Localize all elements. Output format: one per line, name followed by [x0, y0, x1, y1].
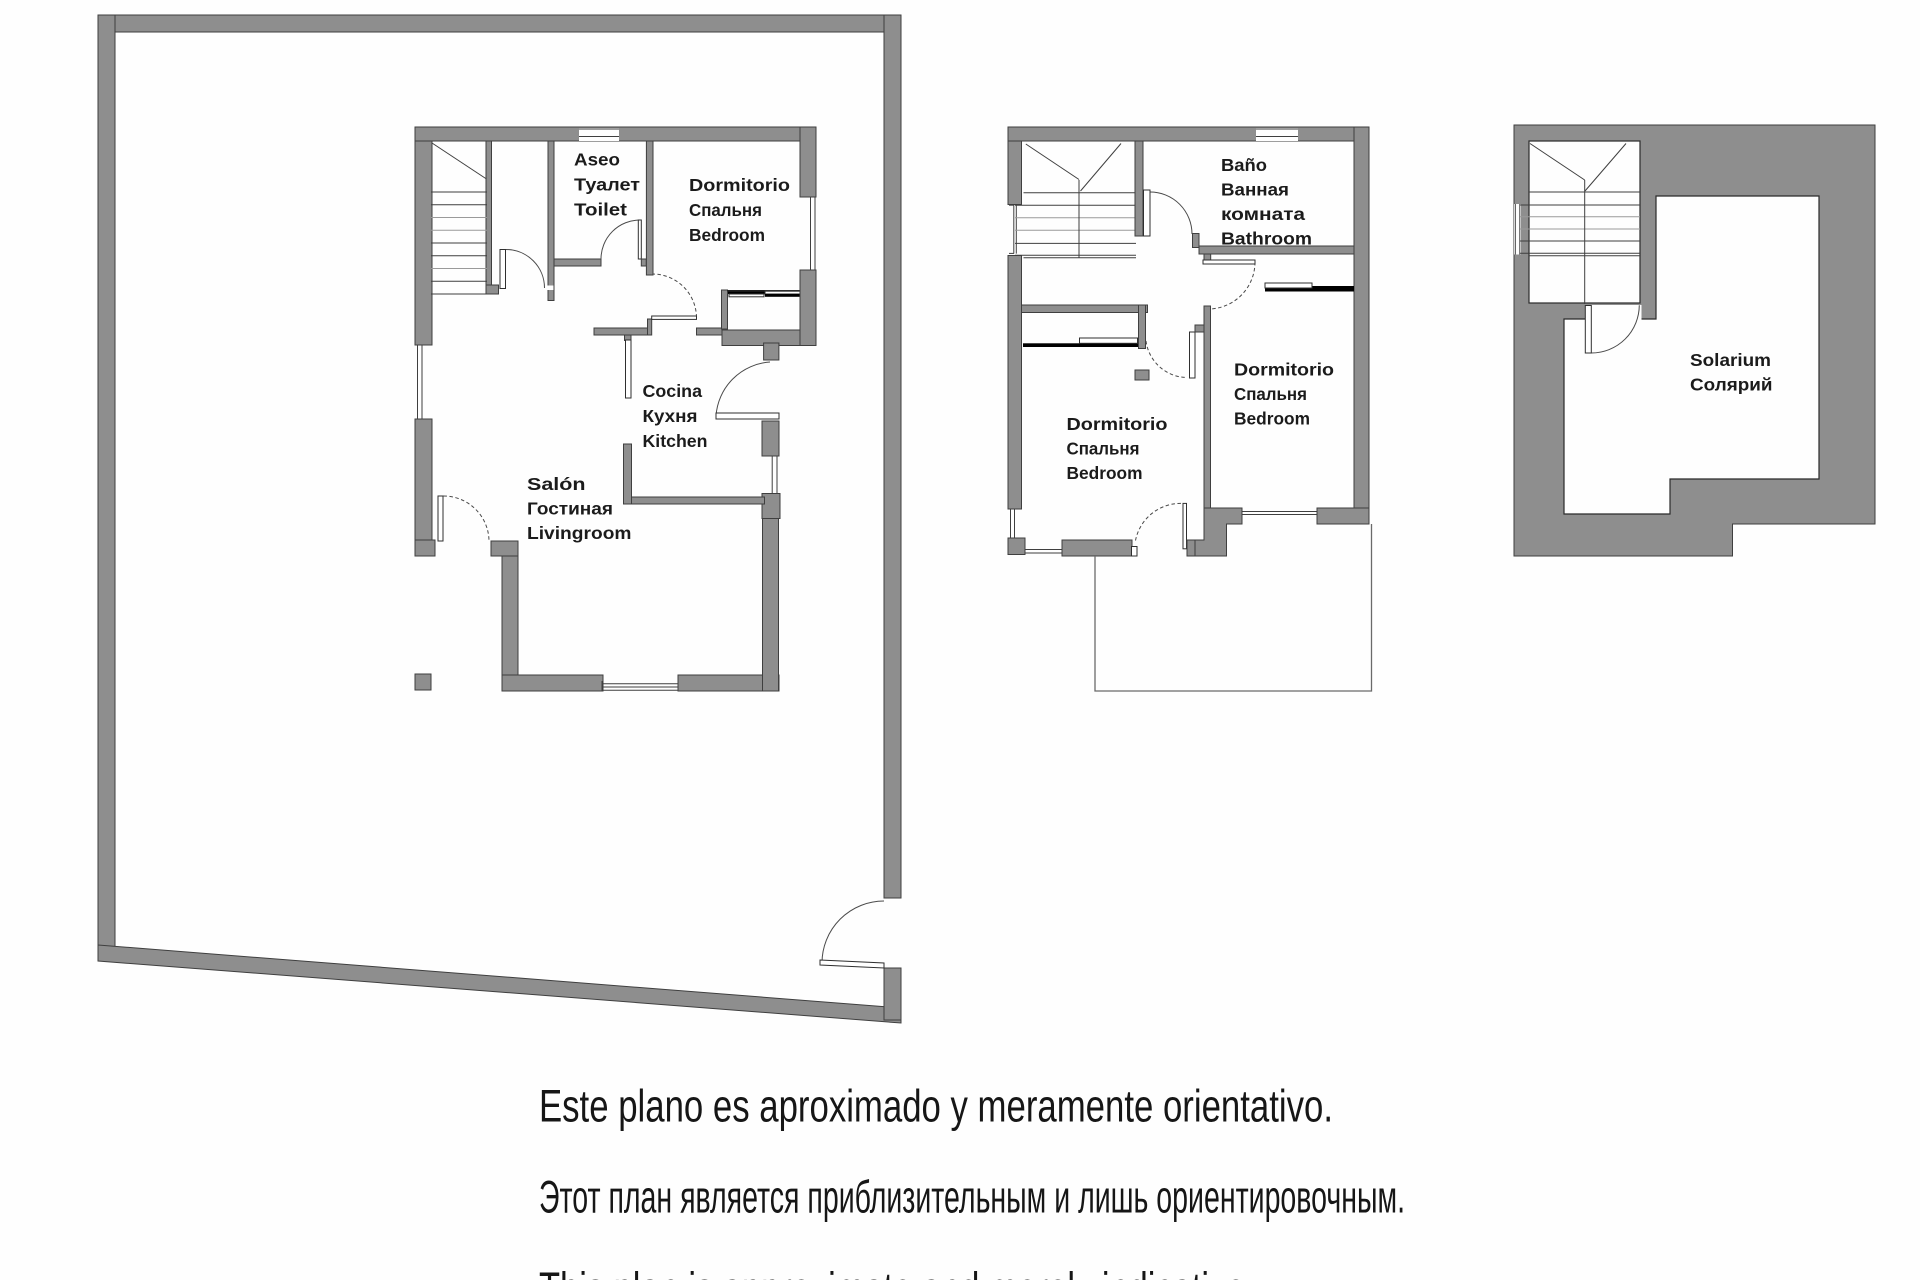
svg-text:Гостиная: Гостиная [527, 499, 613, 519]
svg-text:Dormitorio: Dormitorio [1067, 414, 1168, 434]
svg-text:Toilet: Toilet [574, 200, 627, 220]
svg-text:комната: комната [1221, 204, 1305, 224]
svg-text:Спальня: Спальня [689, 200, 762, 220]
svg-text:Aseo: Aseo [574, 150, 620, 170]
svg-text:Спальня: Спальня [1234, 384, 1307, 404]
svg-text:Solarium: Solarium [1690, 350, 1771, 370]
svg-text:Bathroom: Bathroom [1221, 229, 1312, 249]
svg-text:Salón: Salón [527, 474, 586, 494]
svg-text:Кухня: Кухня [643, 406, 698, 426]
svg-text:Dormitorio: Dormitorio [689, 175, 790, 195]
svg-text:Este plano es aproximado y mer: Este plano es aproximado y meramente ori… [539, 1081, 1333, 1132]
svg-text:Спальня: Спальня [1067, 439, 1140, 459]
svg-text:Солярий: Солярий [1690, 375, 1773, 395]
svg-text:Kitchen: Kitchen [643, 431, 708, 451]
svg-text:Dormitorio: Dormitorio [1234, 360, 1334, 380]
svg-text:Bedroom: Bedroom [1234, 409, 1310, 429]
svg-text:Baño: Baño [1221, 155, 1267, 175]
svg-text:Ванная: Ванная [1221, 180, 1289, 200]
svg-text:Livingroom: Livingroom [527, 523, 632, 543]
svg-text:Bedroom: Bedroom [689, 225, 765, 245]
svg-text:Туалет: Туалет [574, 175, 640, 195]
svg-text:Cocina: Cocina [643, 381, 703, 401]
svg-text:This plan is approximate and m: This plan is approximate and merely indi… [539, 1263, 1255, 1280]
svg-text:Bedroom: Bedroom [1067, 463, 1143, 483]
svg-text:Этот план является приблизител: Этот план является приблизительным и лиш… [539, 1172, 1405, 1223]
